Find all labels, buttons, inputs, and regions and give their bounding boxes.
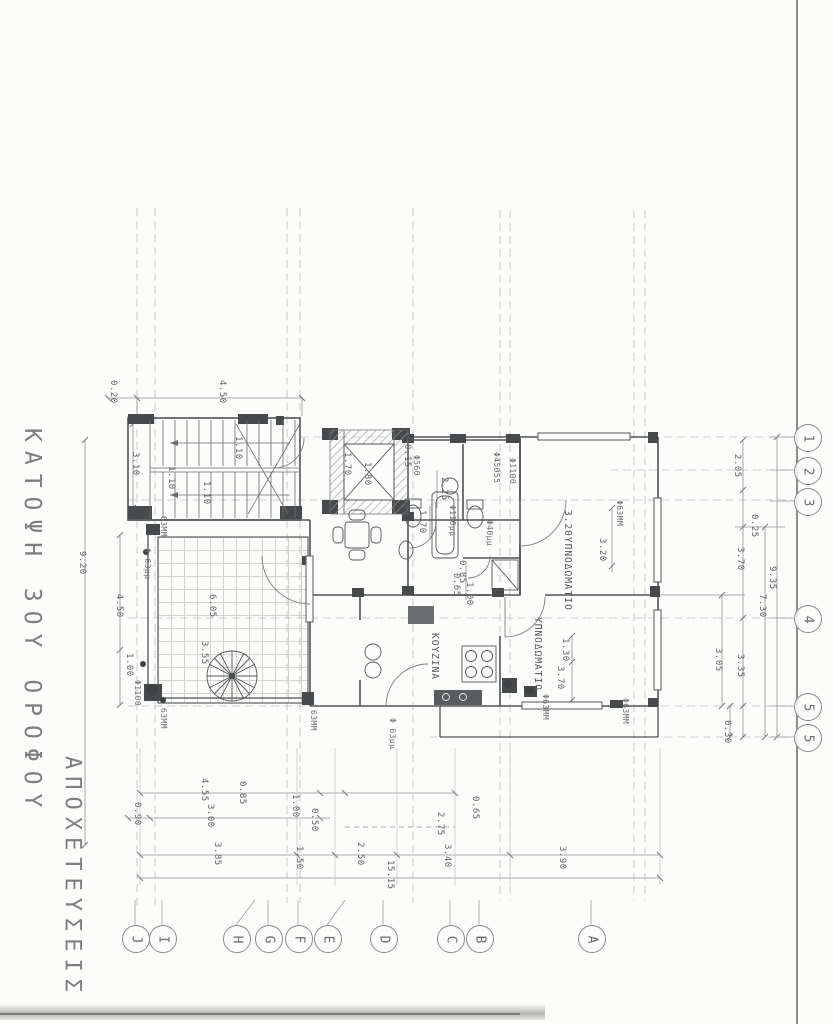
grid-row-bubble: 1 [794,424,822,452]
dimension-label: 15.15 [385,860,395,890]
pipe-diameter-label: Φ 63μμ [388,718,397,749]
grid-column-bubble: H [223,925,251,953]
dimension-label: 0.50 [309,808,319,832]
dimension-label: 1.00 [290,794,300,818]
room-label: ΚΟΥΖΙΝΑ [429,633,440,680]
pipe-diameter-label: 63ΜΜ [159,516,168,537]
dimension-label: 2.75 [435,812,445,836]
grid-column-bubble: B [466,925,494,953]
grid-bubble-label: 5 [800,734,815,742]
grid-column-bubble: I [149,925,177,953]
grid-row-bubble: 2 [794,457,822,485]
dimension-label: 4.50 [114,594,124,618]
dimension-label: 1.30 [560,638,570,662]
dimension-label: 1.70 [342,452,352,476]
grid-column-bubble: D [370,925,398,953]
grid-bubble-label: C [443,935,458,943]
pipe-diameter-label: Φ40μμ [485,520,494,546]
drawing-subtitle: ΑΠΟΧΕΤΕΥΣΕΙΣ [60,756,85,999]
dimension-label: 3.10 [130,452,140,476]
appliance [408,606,434,624]
dimension-label: 6.05 [207,594,217,618]
grid-bubble-label: I [155,935,170,943]
pipe-diameter-label: Φ63ΜΜ [541,694,550,720]
dimension-label: 4.50 [217,380,227,404]
grid-bubble-label: B [472,935,487,943]
dimension-label: 0.30 [722,720,732,744]
dimension-label: 3.55 [199,641,209,665]
grid-bubble-label: J [128,935,143,943]
grid-row-bubble: 4 [794,605,822,633]
toilet [467,500,483,528]
dimension-label: 3.05 [713,648,723,672]
grid-bubble-label: D [376,935,391,943]
construction-grid-lines [128,208,792,905]
pipe-diameter-label: Φ56Θ [412,455,421,476]
dimension-label: 4.55 [199,778,209,802]
grid-bubble-label: 2 [800,467,815,475]
sink-unit [365,644,381,678]
grid-column-bubble: E [314,925,342,953]
drawing-title: ΚΑΤΟΨΗ 3ΟΥ ΟΡΟΦΟΥ [19,428,45,816]
dimension-label: 3.40 [442,844,452,868]
dimension-label: 3.00 [205,804,215,828]
dimension-label: 3.85 [212,842,222,866]
dimension-label: 2.25 [439,477,449,501]
grid-column-bubble: A [578,925,606,953]
dimension-label: 1.10 [233,436,243,460]
grid-row-bubble: 3 [794,488,822,516]
pipe-diameter-label: Φ110Θ [508,458,517,484]
dimension-label: 3.90 [557,846,567,870]
dimension-label: 0.15 [402,444,412,468]
pipe-diameter-label: Φ63ΜΜ [615,500,624,526]
dimension-label: 1.10 [201,481,211,505]
grid-bubble-label: 1 [800,434,815,442]
dimension-label: 0.65 [470,796,480,820]
grid-row-bubble: 5 [794,724,822,752]
dimension-label: 9.35 [767,566,777,590]
dimension-label: 3.20 [597,538,607,562]
scan-bottom-shadow [0,1004,545,1020]
dimension-label: 1.70 [417,510,427,534]
scanned-floorplan-page: ΚΑΤΟΨΗ 3ΟΥ ΟΡΟΦΟΥ ΑΠΟΧΕΤΕΥΣΕΙΣ 0.204.503… [0,0,833,1024]
dimension-label: 0.20 [108,380,118,404]
room-label: 3.20ΥΠΝΟΔΩΜΑΤΙΟ [562,510,573,611]
pipe-diameter-label: 63ΜΜ [309,710,318,731]
dimension-label: 7.30 [757,594,767,618]
dimension-label: 9.20 [77,551,87,575]
pipe-diameter-label: Φ 63μμ [143,548,152,579]
grid-column-bubble: C [437,925,465,953]
grid-bubble-label: 3 [800,498,815,506]
dimension-label: 2.50 [355,842,365,866]
drain-points [140,549,533,703]
kitchen-sink [434,690,482,705]
grid-column-bubble: J [122,925,150,953]
dimension-label: 1.50 [294,846,304,870]
pipe-diameter-label: Φ63ΜΜ [621,698,630,724]
pipe-diameter-label: Φ110μμ [448,505,457,536]
grid-bubble-label: 4 [800,615,815,623]
stove [462,646,496,682]
shower-tray [492,560,518,590]
dimension-label: 3.35 [735,654,745,678]
grid-column-bubble: G [255,925,283,953]
grid-bubble-label: 5 [800,703,815,711]
grid-column-bubble: F [285,925,313,953]
grid-bubble-label: H [229,935,244,943]
dimension-label: 1.00 [124,653,134,677]
grid-row-bubble: 5 [794,693,822,721]
dining-table [333,510,381,560]
grid-bubble-stems [135,437,794,925]
grid-bubble-label: E [320,935,335,943]
grid-bubble-label: A [584,935,599,943]
pipe-diameter-label: Φ110Θ [133,680,142,706]
spiral-stair [207,651,257,701]
dimension-label: 1.00 [464,582,474,606]
room-label: ΥΠΝΟΔΩΜΑΤΙΟ [532,617,543,691]
walls [128,418,658,737]
dimension-label: 1.10 [166,466,176,490]
pipe-diameter-label: Φ45Θ55 [492,452,501,483]
grid-bubble-label: F [291,935,306,943]
dimension-label: 2.05 [732,454,742,478]
dimension-label: 0.65 [451,573,461,597]
dimension-label: 0.90 [132,802,142,826]
dimension-label: 3.70 [735,547,745,571]
pipe-diameter-label: 63ΜΜ [159,708,168,729]
grid-bubble-label: G [261,935,276,943]
dimension-label: 0.25 [749,514,759,538]
dimension-label: 1.80 [362,462,372,486]
dimension-label: 3.70 [555,666,565,690]
scan-bottom-edge-line [0,1013,520,1015]
dimension-label: 0.85 [237,781,247,805]
bidet [399,541,413,559]
